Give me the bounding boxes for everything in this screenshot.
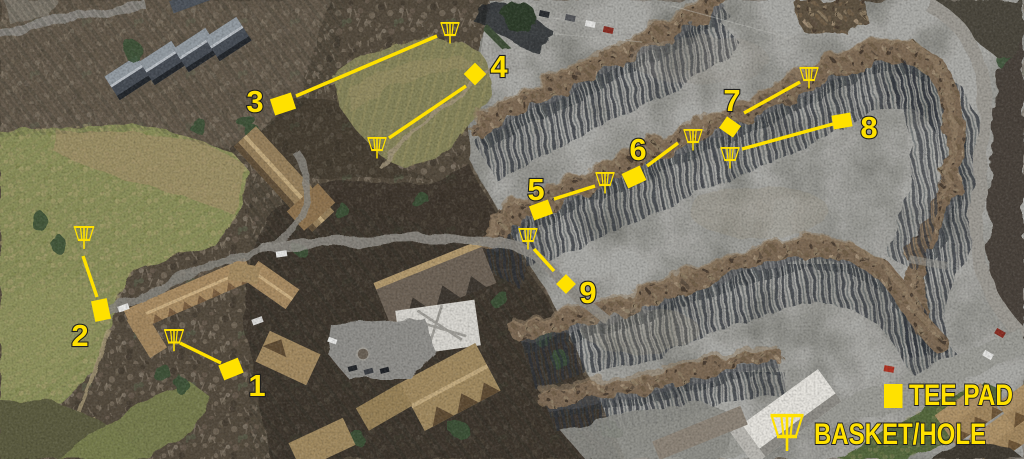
svg-text:BASKET/HOLE: BASKET/HOLE <box>814 418 986 451</box>
svg-text:2: 2 <box>71 318 88 353</box>
svg-text:TEE PAD: TEE PAD <box>909 379 1013 412</box>
svg-text:9: 9 <box>579 275 596 310</box>
svg-text:3: 3 <box>246 84 263 119</box>
svg-text:6: 6 <box>629 132 646 167</box>
svg-text:4: 4 <box>490 49 508 84</box>
svg-text:1: 1 <box>248 368 265 403</box>
svg-text:5: 5 <box>527 172 544 207</box>
svg-text:7: 7 <box>723 83 740 118</box>
svg-text:8: 8 <box>860 110 877 145</box>
